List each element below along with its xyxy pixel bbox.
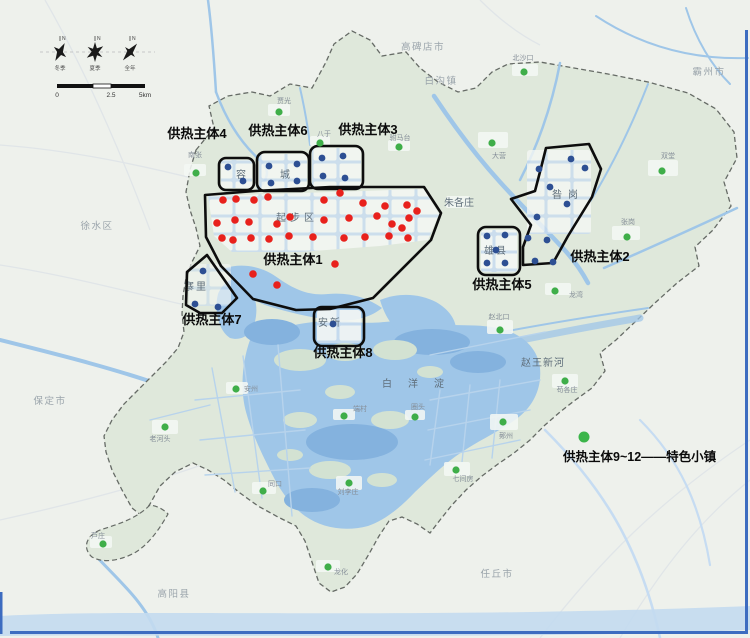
heat-source-dot-red bbox=[247, 234, 255, 242]
town-label: 赵北口 bbox=[489, 312, 510, 321]
zone-label-5: 供热主体5 bbox=[471, 277, 531, 292]
town-label: 端村 bbox=[353, 404, 367, 413]
city-label: 高碑店市 bbox=[401, 41, 445, 53]
legend-label: 供热主体9~12——特色小镇 bbox=[562, 449, 717, 464]
heat-source-dot-red bbox=[345, 214, 353, 222]
heat-source-dot-blue bbox=[225, 164, 232, 171]
heat-source-dot-red bbox=[264, 193, 272, 201]
heat-source-dot-blue bbox=[330, 321, 337, 328]
heat-source-dot-red bbox=[398, 224, 406, 232]
town-dot bbox=[551, 287, 558, 294]
heat-source-dot-blue bbox=[534, 214, 541, 221]
heat-source-dot-blue bbox=[215, 304, 222, 311]
heating-plan-map: 高碑店市霸州市徐水区保定市高阳县任丘市白沟镇起步区容城昝岗雄县安新寨里白洋淀朱各… bbox=[0, 0, 750, 638]
town-label: 北沙口 bbox=[513, 54, 534, 62]
town-label: 老河头 bbox=[150, 434, 171, 443]
heat-source-dot-blue bbox=[192, 301, 199, 308]
heat-source-dot-red bbox=[373, 212, 381, 220]
zone-label-2: 供热主体2 bbox=[569, 249, 629, 264]
heat-source-dot-red bbox=[229, 236, 237, 244]
heat-source-dot-red bbox=[320, 216, 328, 224]
heat-source-dot-red bbox=[232, 195, 240, 203]
heat-source-dot-blue bbox=[294, 161, 301, 168]
heat-source-dot-red bbox=[361, 233, 369, 241]
heat-source-dot-blue bbox=[200, 268, 207, 275]
heat-source-dot-blue bbox=[536, 166, 543, 173]
heat-source-dot-red bbox=[404, 234, 412, 242]
heat-source-dot-blue bbox=[547, 184, 554, 191]
heat-source-dot-red bbox=[245, 218, 253, 226]
heat-source-dot-blue bbox=[266, 163, 273, 170]
area-label: 昝岗 bbox=[552, 188, 584, 201]
legend-green-dot bbox=[579, 432, 590, 443]
town-label: 鄚州 bbox=[499, 431, 513, 440]
town-label: 安州 bbox=[244, 384, 258, 393]
heat-source-dot-blue bbox=[484, 260, 491, 267]
town-dot bbox=[161, 423, 168, 430]
heat-source-dot-blue bbox=[525, 235, 532, 242]
heat-source-dot-red bbox=[331, 260, 339, 268]
town-label: 南张 bbox=[188, 150, 202, 159]
town-label: 苟各庄 bbox=[557, 385, 578, 394]
compass-label-annual: 全年 bbox=[124, 64, 136, 72]
north-mark: N bbox=[97, 36, 101, 42]
heat-source-dot-blue bbox=[550, 259, 557, 266]
heat-source-dot-blue bbox=[532, 258, 539, 265]
town-dot bbox=[275, 108, 282, 115]
town-dot bbox=[395, 143, 402, 150]
heat-source-dot-blue bbox=[582, 165, 589, 172]
town-dot bbox=[192, 169, 199, 176]
heat-source-dot-red bbox=[388, 220, 396, 228]
scale-tick-end: 5km bbox=[139, 92, 151, 99]
area-label: 白洋淀 bbox=[382, 377, 460, 390]
heat-source-dot-red bbox=[249, 270, 257, 278]
heat-source-dot-blue bbox=[268, 180, 275, 187]
heat-source-dot-red bbox=[231, 216, 239, 224]
town-dot bbox=[658, 167, 665, 174]
heat-source-dot-blue bbox=[484, 233, 491, 240]
town-dot bbox=[316, 139, 323, 146]
town-label: 圈头 bbox=[411, 402, 425, 411]
heat-source-dot-blue bbox=[502, 232, 509, 239]
north-mark: N bbox=[62, 36, 66, 42]
town-dot bbox=[488, 139, 495, 146]
zone-label-7: 供热主体7 bbox=[181, 312, 241, 327]
city-label: 徐水区 bbox=[80, 220, 113, 232]
area-label: 朱各庄 bbox=[444, 196, 474, 209]
heat-source-dot-red bbox=[218, 234, 226, 242]
town-dot bbox=[499, 418, 506, 425]
town-label: 大营 bbox=[492, 151, 506, 160]
town-dot bbox=[561, 377, 568, 384]
scale-tick-0: 0 bbox=[55, 92, 59, 99]
town-label: 龙湾 bbox=[569, 290, 583, 299]
town-dot bbox=[324, 563, 331, 570]
town-label: 张岗 bbox=[621, 217, 635, 226]
town-label: 七间房 bbox=[453, 474, 474, 483]
scale-tick-mid: 2.5 bbox=[106, 92, 115, 99]
town-label: 刘李庄 bbox=[338, 487, 359, 496]
town-dot bbox=[411, 413, 418, 420]
town-label: 双堂 bbox=[661, 151, 675, 160]
heat-source-dot-red bbox=[219, 196, 227, 204]
north-mark: N bbox=[132, 36, 136, 42]
compass-label-winter: 冬季 bbox=[54, 64, 66, 72]
town-dot bbox=[99, 540, 106, 547]
zone-label-1: 供热主体1 bbox=[262, 252, 322, 267]
town-dot bbox=[623, 233, 630, 240]
heat-source-dot-blue bbox=[502, 260, 509, 267]
area-label: 起步区 bbox=[276, 212, 318, 224]
town-dot bbox=[345, 479, 352, 486]
city-label: 保定市 bbox=[33, 395, 66, 407]
town-dot bbox=[520, 68, 527, 75]
map-canvas: 高碑店市霸州市徐水区保定市高阳县任丘市白沟镇起步区容城昝岗雄县安新寨里白洋淀朱各… bbox=[0, 0, 750, 638]
heat-source-dot-blue bbox=[320, 173, 327, 180]
heat-source-dot-red bbox=[385, 232, 393, 240]
area-label: 赵王新河 bbox=[521, 356, 565, 369]
heat-source-dot-red bbox=[273, 220, 281, 228]
town-label: 芦庄 bbox=[91, 531, 105, 540]
heat-source-dot-red bbox=[359, 199, 367, 207]
heat-source-dot-red bbox=[413, 207, 421, 215]
heat-source-dot-red bbox=[265, 235, 273, 243]
heat-source-dot-red bbox=[336, 189, 344, 197]
heat-source-dot-red bbox=[250, 196, 258, 204]
heat-source-dot-blue bbox=[319, 155, 326, 162]
zone-label-6: 供热主体6 bbox=[247, 123, 307, 138]
town-label: 同口 bbox=[268, 480, 282, 488]
heat-source-dot-red bbox=[285, 232, 293, 240]
heat-source-dot-blue bbox=[340, 153, 347, 160]
heat-source-dot-red bbox=[405, 214, 413, 222]
city-label: 白沟镇 bbox=[424, 75, 457, 87]
town-dot bbox=[452, 466, 459, 473]
city-label: 高阳县 bbox=[157, 588, 190, 600]
heat-source-dot-blue bbox=[568, 156, 575, 163]
zone-label-4: 供热主体4 bbox=[166, 126, 227, 141]
town-dot bbox=[232, 385, 239, 392]
city-label: 任丘市 bbox=[480, 568, 513, 580]
city-label: 霸州市 bbox=[692, 66, 725, 78]
heat-source-dot-blue bbox=[493, 247, 500, 254]
heat-source-dot-red bbox=[340, 234, 348, 242]
town-dot bbox=[496, 326, 503, 333]
town-label: 八于 bbox=[317, 130, 331, 138]
heat-source-dot-red bbox=[309, 233, 317, 241]
heat-source-dot-blue bbox=[564, 201, 571, 208]
heat-source-dot-red bbox=[403, 201, 411, 209]
heat-source-dot-red bbox=[381, 202, 389, 210]
town-label: 贾光 bbox=[277, 96, 291, 105]
town-label: 龙化 bbox=[334, 567, 348, 576]
town-dot bbox=[340, 412, 347, 419]
compass-label-summer: 夏季 bbox=[89, 64, 101, 72]
heat-source-dot-blue bbox=[342, 175, 349, 182]
zone-label-8: 供热主体8 bbox=[312, 345, 372, 360]
heat-source-dot-blue bbox=[294, 178, 301, 185]
heat-source-dot-blue bbox=[240, 178, 247, 185]
heat-source-dot-blue bbox=[544, 237, 551, 244]
heat-source-dot-red bbox=[213, 219, 221, 227]
heat-source-dot-red bbox=[320, 196, 328, 204]
zone-label-3: 供热主体3 bbox=[337, 122, 397, 137]
heat-source-dot-red bbox=[273, 281, 281, 289]
heat-source-dot-red bbox=[286, 213, 294, 221]
town-dot bbox=[259, 487, 266, 494]
